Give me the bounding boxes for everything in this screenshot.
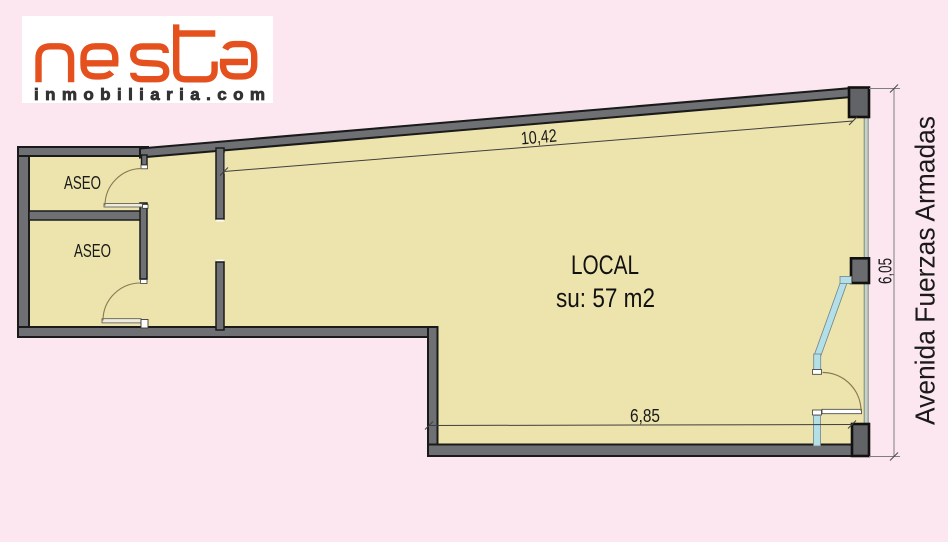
svg-text:ASEO: ASEO	[74, 241, 111, 261]
svg-text:LOCAL: LOCAL	[571, 250, 639, 280]
svg-text:su: 57 m2: su: 57 m2	[556, 283, 655, 313]
svg-text:Avenida Fuerzas Armadas: Avenida Fuerzas Armadas	[910, 116, 941, 425]
svg-text:6,05: 6,05	[876, 258, 896, 284]
svg-text:ASEO: ASEO	[64, 173, 101, 193]
svg-text:6,85: 6,85	[630, 406, 660, 426]
svg-text:10,42: 10,42	[520, 126, 558, 149]
